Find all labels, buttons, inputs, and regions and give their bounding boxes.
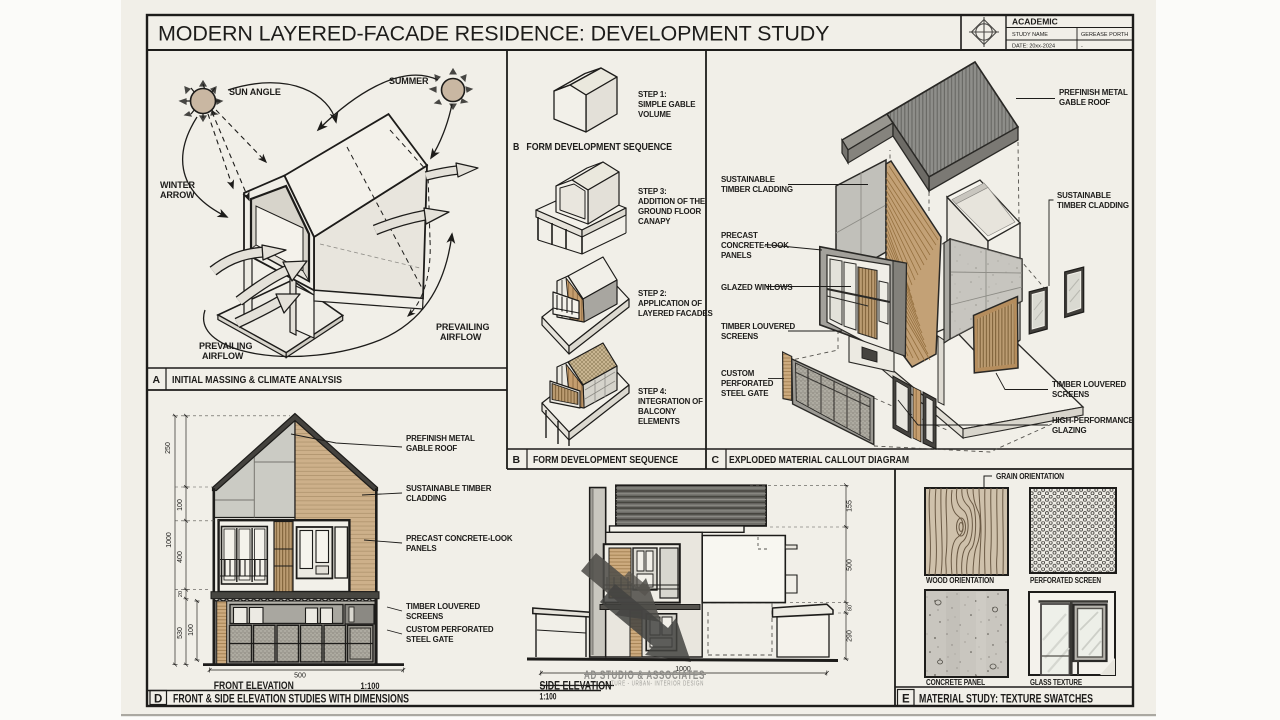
svg-text:GLASS TEXTURE: GLASS TEXTURE <box>1030 678 1082 687</box>
svg-text:STEP 2:: STEP 2: <box>638 289 667 298</box>
svg-text:20: 20 <box>178 591 184 597</box>
svg-text:GRAIN ORIENTATION: GRAIN ORIENTATION <box>996 472 1064 481</box>
svg-text:PREVAILING: PREVAILING <box>199 341 252 351</box>
svg-text:D: D <box>154 694 162 706</box>
svg-text:A: A <box>153 374 161 386</box>
svg-text:250: 250 <box>165 442 172 454</box>
svg-text:TIMBER LOUVERED: TIMBER LOUVERED <box>1052 380 1126 389</box>
svg-text:STEP 3:: STEP 3: <box>638 187 667 196</box>
svg-text:INITIAL MASSING & CLIMATE ANAL: INITIAL MASSING & CLIMATE ANALYSIS <box>172 374 342 386</box>
svg-text:HIGH-PERFORMANCE: HIGH-PERFORMANCE <box>1052 416 1134 425</box>
svg-text:SCREENS: SCREENS <box>721 332 758 341</box>
svg-text:AIRFLOW: AIRFLOW <box>202 351 244 361</box>
svg-text:ACADEMIC: ACADEMIC <box>1012 17 1058 27</box>
svg-text:GABLE ROOF: GABLE ROOF <box>406 444 457 453</box>
svg-text:TIMBER CLADDING: TIMBER CLADDING <box>721 185 793 194</box>
svg-text:GROUND FLOOR: GROUND FLOOR <box>638 207 702 216</box>
svg-text:100: 100 <box>188 624 195 636</box>
svg-text:WOOD ORIENTATION: WOOD ORIENTATION <box>926 576 994 585</box>
svg-text:SUSTAINABLE: SUSTAINABLE <box>721 175 775 184</box>
svg-text:STEP 4:: STEP 4: <box>638 387 667 396</box>
svg-text:E: E <box>902 694 910 706</box>
svg-text:ELEMENTS: ELEMENTS <box>638 417 680 426</box>
svg-text:500: 500 <box>847 559 854 571</box>
svg-text:STEEL GATE: STEEL GATE <box>721 389 768 398</box>
svg-text:PREFINISH METAL: PREFINISH METAL <box>1059 88 1128 97</box>
svg-text:B: B <box>513 454 521 466</box>
svg-text:290: 290 <box>847 630 854 642</box>
svg-text:AIRFLOW: AIRFLOW <box>440 332 482 342</box>
svg-text:BALCONY: BALCONY <box>638 407 677 416</box>
svg-text:SIMPLE GABLE: SIMPLE GABLE <box>638 100 695 109</box>
svg-text:ADDITION OF THE: ADDITION OF THE <box>638 197 705 206</box>
svg-text:WINTER: WINTER <box>160 180 195 190</box>
svg-text:FRONT & SIDE ELEVATION STUDIES: FRONT & SIDE ELEVATION STUDIES WITH DIME… <box>173 694 409 706</box>
svg-text:STEP 1:: STEP 1: <box>638 90 667 99</box>
svg-text:GLAZED WINLOWS: GLAZED WINLOWS <box>721 283 793 292</box>
svg-text:FORM DEVELOPMENT SEQUENCE: FORM DEVELOPMENT SEQUENCE <box>533 454 678 466</box>
svg-text:GEREASE PORTH: GEREASE PORTH <box>1081 32 1128 38</box>
svg-text:1:100: 1:100 <box>540 692 557 702</box>
svg-text:STEEL GATE: STEEL GATE <box>406 635 453 644</box>
svg-text:INTEGRATION OF: INTEGRATION OF <box>638 397 703 406</box>
svg-text:PANELS: PANELS <box>721 251 752 260</box>
svg-text:MODERN LAYERED-FACADE RESIDENC: MODERN LAYERED-FACADE RESIDENCE: DEVELOP… <box>158 22 830 46</box>
svg-text:PRECAST: PRECAST <box>721 231 758 240</box>
svg-text:-: - <box>1081 44 1083 50</box>
svg-text:PANELS: PANELS <box>406 544 437 553</box>
svg-text:ARROW: ARROW <box>160 190 195 200</box>
svg-text:PERFORATED SCREEN: PERFORATED SCREEN <box>1030 576 1101 585</box>
svg-text:PREFINISH METAL: PREFINISH METAL <box>406 434 475 443</box>
svg-text:SCREENS: SCREENS <box>406 612 443 621</box>
svg-text:EXPLODED MATERIAL CALLOUT DIAG: EXPLODED MATERIAL CALLOUT DIAGRAM <box>729 454 909 466</box>
svg-text:CUSTOM: CUSTOM <box>721 369 755 378</box>
svg-text:CONCRETE PANEL: CONCRETE PANEL <box>926 678 985 687</box>
svg-text:TURE - URBAN- INTERIOR DESIGN: TURE - URBAN- INTERIOR DESIGN <box>611 679 704 688</box>
svg-text:PERFORATED: PERFORATED <box>721 379 774 388</box>
svg-text:B FORM DEVELOPMENT SEQUENCE: B FORM DEVELOPMENT SEQUENCE <box>513 141 672 153</box>
svg-text:FRONT ELEVATION: FRONT ELEVATION <box>214 680 294 692</box>
svg-text:TIMBER LOUVERED: TIMBER LOUVERED <box>721 322 795 331</box>
svg-text:PRECAST CONCRETE-LOOK: PRECAST CONCRETE-LOOK <box>406 534 513 543</box>
svg-text:MATERIAL STUDY: TEXTURE SWATCH: MATERIAL STUDY: TEXTURE SWATCHES <box>919 694 1093 706</box>
svg-text:SUN ANGLE: SUN ANGLE <box>229 87 281 97</box>
svg-text:C: C <box>712 454 720 466</box>
svg-text:SUMMER: SUMMER <box>389 76 429 86</box>
svg-text:100: 100 <box>177 499 184 511</box>
svg-text:SUSTAINABLE: SUSTAINABLE <box>1057 191 1111 200</box>
svg-text:APPLICATION OF: APPLICATION OF <box>638 299 702 308</box>
svg-text:LAYERED FACADES: LAYERED FACADES <box>638 309 713 318</box>
svg-text:GLAZING: GLAZING <box>1052 426 1086 435</box>
svg-text:TIMBER LOUVERED: TIMBER LOUVERED <box>406 602 480 611</box>
svg-text:STUDY NAME: STUDY NAME <box>1012 32 1048 38</box>
svg-text:400: 400 <box>177 551 184 563</box>
svg-text:SIDE ELEVATION: SIDE ELEVATION <box>540 679 612 693</box>
svg-text:GABLE ROOF: GABLE ROOF <box>1059 98 1110 107</box>
svg-text:TIMBER CLADDING: TIMBER CLADDING <box>1057 201 1129 210</box>
svg-text:SUSTAINABLE TIMBER: SUSTAINABLE TIMBER <box>406 484 492 493</box>
svg-text:1000: 1000 <box>166 532 173 548</box>
svg-text:DATE: 20xx-2024: DATE: 20xx-2024 <box>1012 44 1055 50</box>
svg-text:500: 500 <box>294 673 306 680</box>
svg-text:CANAPY: CANAPY <box>638 217 671 226</box>
svg-text:SCREENS: SCREENS <box>1052 390 1089 399</box>
svg-text:CLADDING: CLADDING <box>406 494 446 503</box>
svg-text:80: 80 <box>848 605 854 611</box>
svg-text:PREVAILING: PREVAILING <box>436 322 489 332</box>
svg-text:155: 155 <box>847 500 854 512</box>
svg-text:1:100: 1:100 <box>361 681 380 691</box>
svg-text:530: 530 <box>177 627 184 639</box>
svg-text:VOLUME: VOLUME <box>638 110 671 119</box>
svg-text:CUSTOM PERFORATED: CUSTOM PERFORATED <box>406 625 494 634</box>
svg-text:CONCRETE-LOOK: CONCRETE-LOOK <box>721 241 789 250</box>
